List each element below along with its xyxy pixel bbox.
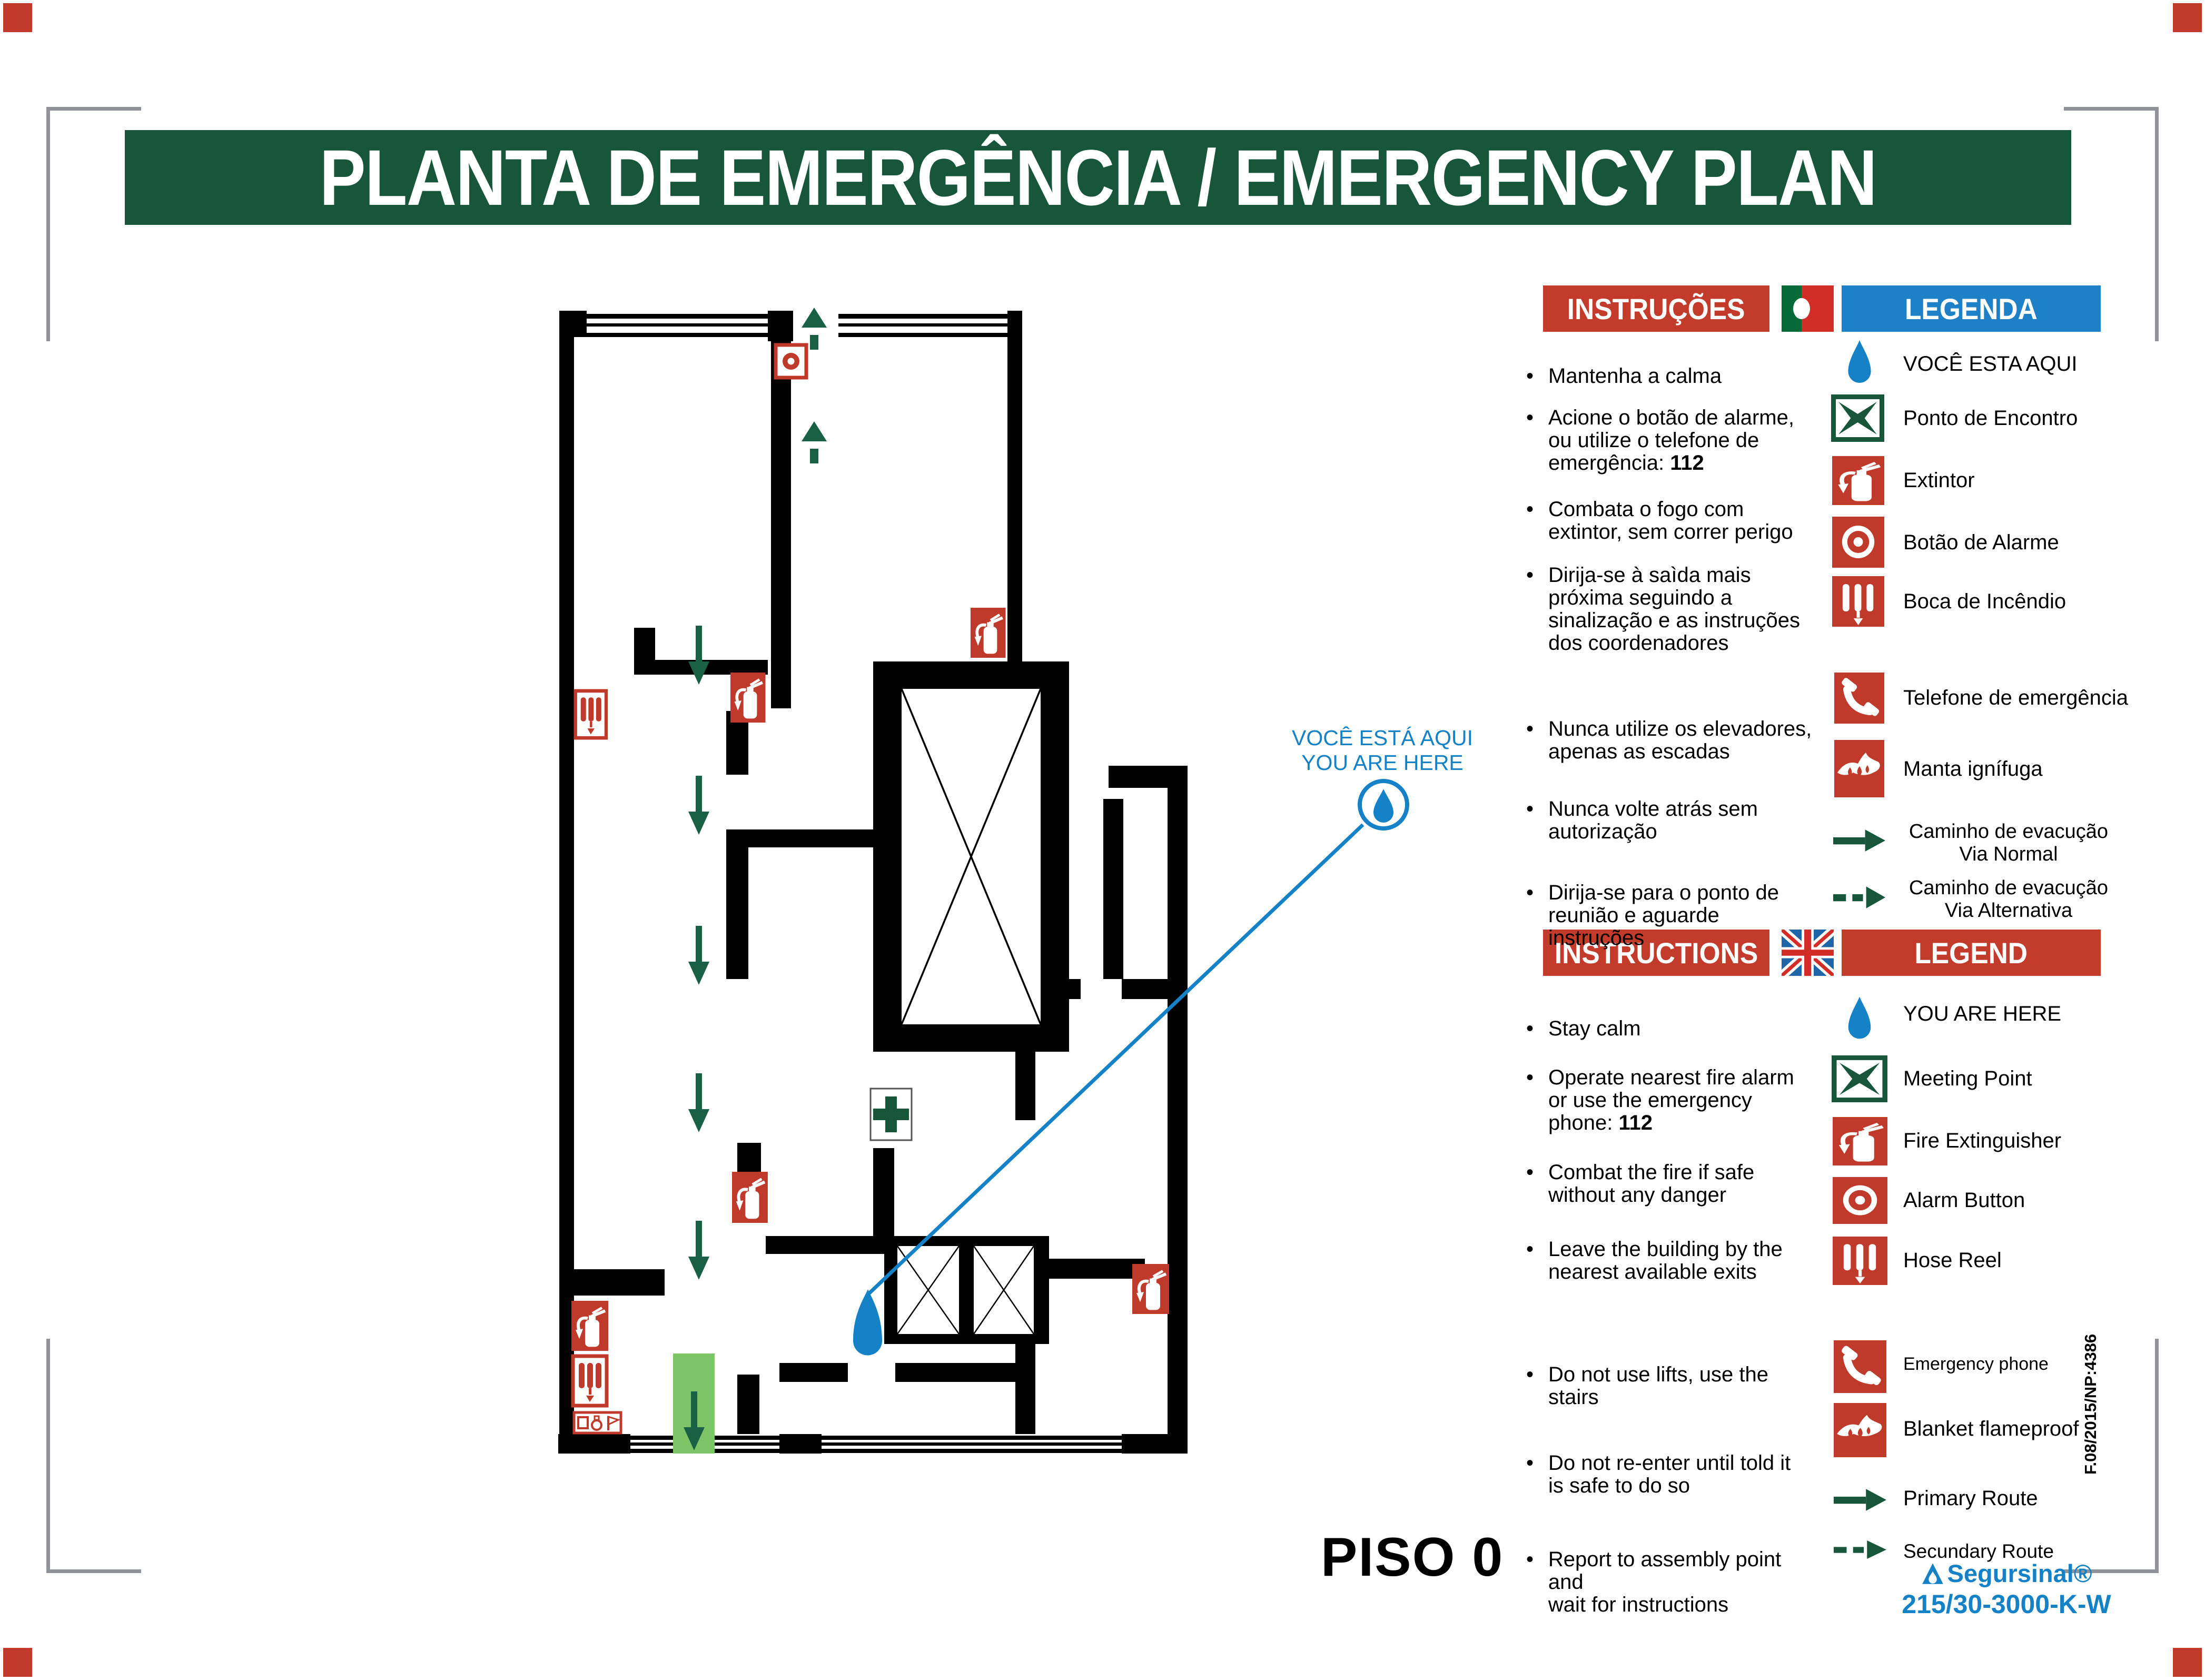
brand-name: Segursinal® <box>1947 1559 2092 1588</box>
you-are-here-overlay <box>0 0 2205 1680</box>
document-reference: F.08/2015/NP:4386 <box>2081 1334 2100 1475</box>
you-are-here-label: VOCÊ ESTÁ AQUI YOU ARE HERE <box>1280 726 1485 775</box>
brand-footer: Segursinal® 215/30-3000-K-W <box>1896 1559 2117 1619</box>
brand-logo-icon <box>1921 1562 1944 1585</box>
you-are-here-marker-icon <box>853 1289 882 1356</box>
product-code: 215/30-3000-K-W <box>1896 1589 2117 1619</box>
emergency-plan-poster: PLANTA DE EMERGÊNCIA / EMERGENCY PLAN IN… <box>0 0 2205 1680</box>
floor-label: PISO 0 <box>1321 1526 1504 1589</box>
